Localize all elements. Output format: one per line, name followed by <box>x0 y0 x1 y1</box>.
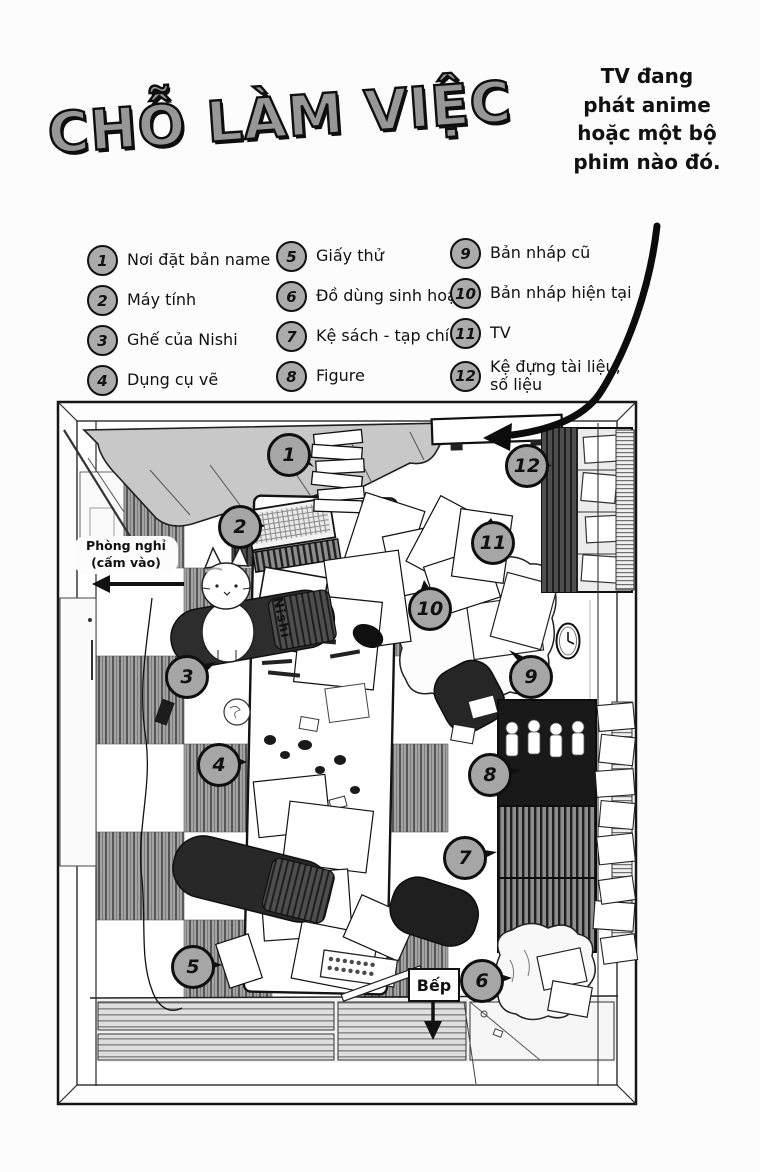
legend-item-number: 1 <box>87 245 118 276</box>
map-marker-1: 1 <box>267 433 311 477</box>
map-marker-5: 5 <box>171 945 215 989</box>
wall-clock <box>557 624 580 659</box>
kitchen-label: Bếp <box>408 968 460 1002</box>
map-marker-12: 12 <box>505 444 549 488</box>
legend-item: 5 Giấy thử <box>276 241 463 272</box>
legend-item-label: Nơi đặt bản name <box>127 251 270 269</box>
map-marker-7: 7 <box>443 836 487 880</box>
map-marker-9: 9 <box>509 655 553 699</box>
legend-item-label: Ghế của Nishi <box>127 331 238 349</box>
paper-stack <box>311 430 364 513</box>
legend-item-number: 7 <box>276 321 307 352</box>
map-marker-6: 6 <box>460 959 504 1003</box>
map-marker-10: 10 <box>408 587 452 631</box>
legend-item-number: 8 <box>276 361 307 392</box>
rest-room-label-line: Phòng nghỉ <box>74 538 178 555</box>
tv-annotation-line: hoặc một bộ <box>538 119 756 148</box>
legend-item-number: 3 <box>87 325 118 356</box>
tv-annotation-line: TV đang <box>538 62 756 91</box>
legend-item: 2 Máy tính <box>87 285 270 316</box>
legend-item-label: Đồ dùng sinh hoạt <box>316 287 463 305</box>
legend-item-label: Bản nháp cũ <box>490 244 590 262</box>
legend-item: 7 Kệ sách - tạp chí <box>276 321 463 352</box>
legend-item-label: Máy tính <box>127 291 196 309</box>
legend-item: 10 Bản nháp hiện tại <box>450 278 642 309</box>
legend-item: 9 Bản nháp cũ <box>450 238 642 269</box>
tv-annotation-line: phim nào đó. <box>538 148 756 177</box>
legend-item-number: 4 <box>87 365 118 396</box>
legend-item-label: Figure <box>316 367 365 385</box>
tv-annotation: TV đang phát anime hoặc một bộ phim nào … <box>538 62 756 176</box>
legend-column-3: 9 Bản nháp cũ 10 Bản nháp hiện tại 11 TV… <box>450 238 642 395</box>
map-marker-8: 8 <box>468 753 512 797</box>
manga-page: CHỖ LÀM VIỆC TV đang phát anime hoặc một… <box>0 0 760 1172</box>
legend-item: 1 Nơi đặt bản name <box>87 245 270 276</box>
legend-item-number: 10 <box>450 278 481 309</box>
legend-item-number: 12 <box>450 361 481 392</box>
legend-item-label: TV <box>490 324 511 342</box>
legend-item-label: Dụng cụ vẽ <box>127 371 218 389</box>
document-shelf <box>542 428 634 592</box>
legend-item: 3 Ghế của Nishi <box>87 325 270 356</box>
legend-item-number: 6 <box>276 281 307 312</box>
rest-room-label: Phòng nghỉ (cấm vào) <box>74 536 178 574</box>
map-marker-11: 11 <box>471 521 515 565</box>
legend-item-number: 9 <box>450 238 481 269</box>
tv-annotation-line: phát anime <box>538 91 756 120</box>
legend-item-number: 11 <box>450 318 481 349</box>
legend-item: 11 TV <box>450 318 642 349</box>
legend-column-2: 5 Giấy thử 6 Đồ dùng sinh hoạt 7 Kệ sách… <box>276 241 463 392</box>
legend-item: 4 Dụng cụ vẽ <box>87 365 270 396</box>
legend-item-label: Kệ đựng tài liệu, số liệu <box>490 358 642 395</box>
legend-item-number: 2 <box>87 285 118 316</box>
rest-room-label-line: (cấm vào) <box>74 555 178 572</box>
legend-item: 6 Đồ dùng sinh hoạt <box>276 281 463 312</box>
map-marker-4: 4 <box>197 743 241 787</box>
legend-item-label: Bản nháp hiện tại <box>490 284 632 302</box>
legend-column-1: 1 Nơi đặt bản name 2 Máy tính 3 Ghế của … <box>87 245 270 396</box>
legend-item: 8 Figure <box>276 361 463 392</box>
legend-item-number: 5 <box>276 241 307 272</box>
legend-item-label: Kệ sách - tạp chí <box>316 327 449 345</box>
map-marker-3: 3 <box>165 655 209 699</box>
legend-item: 12 Kệ đựng tài liệu, số liệu <box>450 358 642 395</box>
legend-item-label: Giấy thử <box>316 247 384 265</box>
map-marker-2: 2 <box>218 505 262 549</box>
